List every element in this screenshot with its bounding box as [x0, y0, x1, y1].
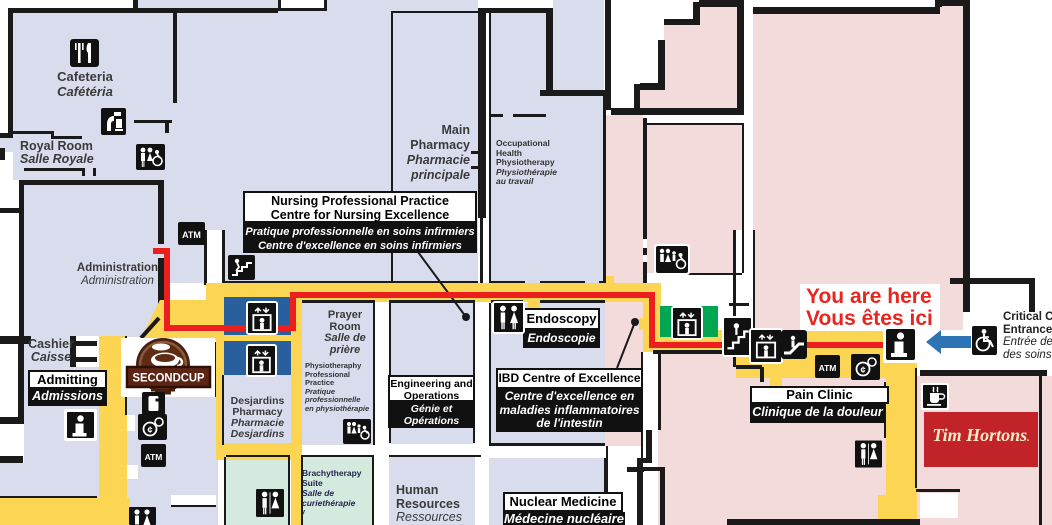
svg-text:SECONDCUP: SECONDCUP — [133, 373, 205, 385]
svg-text:¢: ¢ — [860, 365, 865, 375]
svg-text:ATM: ATM — [145, 452, 163, 462]
svg-text:¢: ¢ — [147, 425, 152, 435]
svg-text:ATM: ATM — [182, 230, 201, 240]
svg-text:ATM: ATM — [819, 363, 837, 373]
